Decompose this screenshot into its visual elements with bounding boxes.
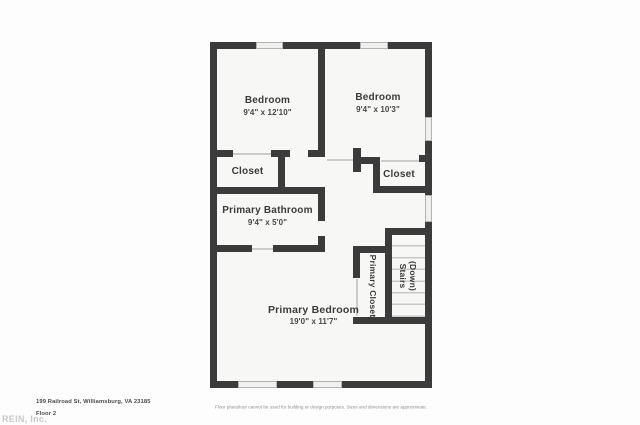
watermark: REIN, Inc.	[2, 414, 47, 424]
room-dimensions: 9'4" x 12'10"	[217, 108, 318, 117]
room-dimensions: 9'4" x 5'0"	[217, 218, 318, 227]
room-label-bedroom-2: Bedroom 9'4" x 10'3"	[330, 92, 426, 114]
door-opening	[233, 153, 271, 155]
wall-outer-left	[210, 42, 217, 388]
wall-bedroom2-bottom	[353, 157, 380, 164]
room-name: Primary Bathroom	[217, 205, 318, 217]
room-label-primary-bedroom: Primary Bedroom 19'0" x 11'7"	[217, 304, 410, 326]
wall-outer-top	[210, 42, 432, 49]
room-label-primary-bathroom: Primary Bathroom 9'4" x 5'0"	[217, 205, 318, 227]
wall-bathroom-top	[217, 187, 325, 194]
room-label-bedroom-1: Bedroom 9'4" x 12'10"	[217, 95, 318, 117]
window-symbol	[256, 42, 283, 49]
wall-bathroom-bottom	[273, 245, 325, 252]
window-symbol	[238, 381, 277, 388]
room-name: Primary Closet	[368, 255, 378, 318]
room-label-stairs: (Down) Stairs	[396, 248, 420, 304]
address-text: 199 Railroad St, Williamsburg, VA 23185	[36, 398, 151, 404]
wall-bedroom-divider	[318, 49, 325, 157]
window-symbol	[313, 381, 342, 388]
wall-closet2-bottom	[373, 186, 425, 193]
wall-bathroom-bottom	[217, 245, 252, 252]
stairs-direction: (Down)	[408, 261, 418, 291]
room-label-primary-closet: Primary Closet	[367, 236, 379, 336]
door-opening	[381, 160, 419, 162]
room-name: Bedroom	[330, 92, 426, 104]
wall-segment	[217, 150, 233, 157]
room-dimensions: 19'0" x 11'7"	[217, 317, 410, 326]
floorplan-page: Bedroom 9'4" x 12'10" Bedroom 9'4" x 10'…	[0, 0, 640, 425]
door-opening	[327, 159, 353, 161]
door-opening	[252, 248, 273, 250]
wall-segment	[419, 155, 425, 162]
room-name: Closet	[373, 169, 425, 181]
room-name: Primary Bedroom	[217, 304, 410, 316]
wall-bathroom-right	[318, 194, 325, 221]
room-name: Bedroom	[217, 95, 318, 107]
room-label-closet-2: Closet	[373, 169, 425, 181]
window-symbol	[360, 42, 388, 49]
wall-segment	[308, 150, 318, 157]
window-symbol	[425, 117, 432, 141]
wall-stairs-top	[385, 228, 432, 235]
room-name: Closet	[217, 166, 278, 178]
room-name: Stairs	[398, 261, 408, 291]
room-dimensions: 9'4" x 10'3"	[330, 105, 426, 114]
wall-primary-closet-left	[353, 246, 360, 278]
disclaimer-text: Floor plans/tour cannot be used for buil…	[215, 405, 427, 410]
window-symbol	[425, 195, 432, 222]
room-label-closet-1: Closet	[217, 166, 278, 178]
